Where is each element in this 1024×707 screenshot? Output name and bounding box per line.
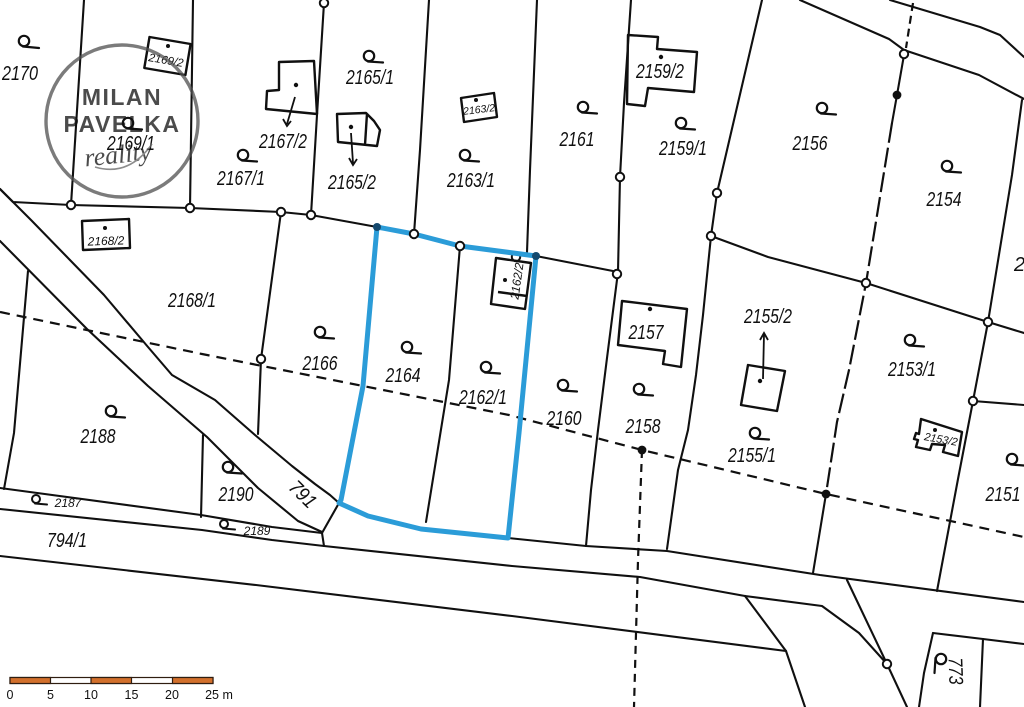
svg-text:2188: 2188: [80, 426, 116, 448]
svg-text:20: 20: [165, 688, 179, 702]
svg-text:0: 0: [7, 688, 14, 702]
svg-text:MILAN: MILAN: [82, 84, 162, 110]
svg-text:2168/2: 2168/2: [86, 233, 124, 248]
svg-text:2166: 2166: [302, 353, 338, 375]
svg-text:2159/2: 2159/2: [635, 61, 684, 83]
svg-text:2151: 2151: [985, 484, 1021, 506]
svg-text:2156: 2156: [792, 133, 828, 155]
svg-text:10: 10: [84, 688, 98, 702]
svg-text:2: 2: [1013, 254, 1024, 276]
svg-text:2189: 2189: [243, 524, 271, 538]
svg-text:2163/1: 2163/1: [446, 170, 495, 192]
svg-text:2155/1: 2155/1: [727, 445, 776, 467]
svg-text:5: 5: [47, 688, 54, 702]
svg-text:PAVELKA: PAVELKA: [64, 111, 181, 137]
svg-text:2190: 2190: [218, 484, 254, 506]
svg-text:2165/1: 2165/1: [345, 67, 394, 89]
svg-text:2187: 2187: [54, 496, 83, 510]
svg-text:2159/1: 2159/1: [658, 138, 707, 160]
svg-text:773: 773: [944, 657, 967, 685]
svg-text:2160: 2160: [546, 408, 582, 430]
svg-text:794/1: 794/1: [47, 530, 87, 552]
svg-text:2158: 2158: [625, 416, 661, 438]
svg-text:2165/2: 2165/2: [327, 172, 376, 194]
svg-text:2162/1: 2162/1: [458, 387, 507, 409]
svg-text:2168/1: 2168/1: [167, 290, 216, 312]
svg-text:2157: 2157: [628, 322, 664, 344]
svg-text:2153/1: 2153/1: [887, 359, 936, 381]
svg-text:2161: 2161: [559, 129, 595, 151]
svg-text:2154: 2154: [926, 189, 962, 211]
svg-text:2155/2: 2155/2: [743, 306, 792, 328]
svg-text:2164: 2164: [385, 365, 421, 387]
svg-text:15: 15: [125, 688, 139, 702]
svg-text:2167/1: 2167/1: [216, 168, 265, 190]
svg-text:2170: 2170: [1, 63, 38, 85]
svg-text:25 m: 25 m: [205, 688, 233, 702]
svg-text:2167/2: 2167/2: [258, 131, 307, 153]
